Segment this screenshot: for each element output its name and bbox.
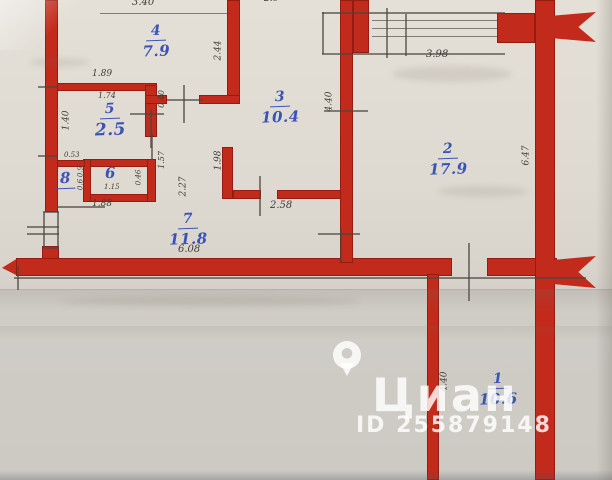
wall-room4-room3 xyxy=(227,0,240,104)
pencil-balcony-left xyxy=(322,12,324,54)
pencil-room3-door-v xyxy=(259,176,261,216)
pencil-balcony-tick-2 xyxy=(405,14,407,56)
pencil-balcony-tick-1 xyxy=(386,8,388,58)
wall-exterior-bottom xyxy=(16,258,452,276)
room-5-label: 5 2.5 xyxy=(81,97,138,141)
pencil-door5-cross-v xyxy=(183,85,185,123)
paper-crease-horizontal-1 xyxy=(0,290,612,320)
watermark-id: ID 255879148 xyxy=(356,413,552,438)
pencil-left-window-inner xyxy=(57,212,59,248)
pencil-band-cross-h xyxy=(318,233,360,235)
dim-room5-left: 1.40 xyxy=(63,106,72,136)
wall-door-seg-right xyxy=(199,95,240,104)
pencil-window-line-1 xyxy=(372,20,497,21)
dim-room2-right: 6.47 xyxy=(523,141,532,171)
wall-room6-right xyxy=(147,159,156,202)
wall-exterior-right xyxy=(535,0,555,480)
pencil-left-window-top xyxy=(43,211,59,213)
room-5-number: 5 xyxy=(100,101,120,120)
wall-room2-top-right-block xyxy=(497,13,535,43)
paper-smudge-1 xyxy=(392,66,512,82)
pencil-room5-door-v xyxy=(151,134,153,160)
dim-room5-above: 1.89 xyxy=(92,70,112,79)
room-6-number: 6 xyxy=(100,164,121,184)
wall-room5-top xyxy=(57,83,157,91)
paper-smudge-4 xyxy=(60,296,360,306)
dim-room3-door: 2.58 xyxy=(270,201,292,211)
paper-smudge-2 xyxy=(438,186,528,197)
pencil-window-line-2 xyxy=(372,28,497,29)
pencil-left-window-outer xyxy=(43,212,45,248)
dim-room6-right: 0.46 xyxy=(136,163,143,193)
room-7-label: 7 11.8 xyxy=(157,207,218,249)
pencil-under-band xyxy=(14,277,586,279)
wall-room3-bottom-right xyxy=(277,190,343,199)
wall-room3-room2 xyxy=(340,0,353,263)
room-7-number: 7 xyxy=(178,211,198,230)
wall-hall-right xyxy=(222,147,233,199)
pencil-left-window-tick-1 xyxy=(27,226,59,228)
location-pin-icon xyxy=(333,341,361,369)
room-8-label: 8 xyxy=(55,168,76,190)
wall-arrow-mid-right xyxy=(554,256,596,288)
pencil-band-tip-tick xyxy=(17,266,19,290)
room-3-area: 10.4 xyxy=(252,107,309,127)
wall-room3-bottom-left xyxy=(233,190,261,199)
pencil-left-window-tick-2 xyxy=(27,233,59,235)
dim-hall-198: 1.98 xyxy=(215,146,224,176)
paper-crease-line-1 xyxy=(0,289,612,290)
room-5-area: 2.5 xyxy=(82,119,139,141)
room-3-number: 3 xyxy=(270,89,290,108)
room-4-label: 4 7.9 xyxy=(127,19,184,61)
dim-room4-right: 2.44 xyxy=(215,36,224,66)
dim-room6-inner: 1.15 xyxy=(104,184,120,191)
paper-smudge-3 xyxy=(30,58,90,67)
dim-room6-below: 1.88 xyxy=(92,200,112,209)
room-6-label: 6 xyxy=(100,163,121,184)
floor-plan-scan: 3.40 2.6 2.44 1.89 1.74 1.40 0.40 1.57 2… xyxy=(0,0,612,480)
pencil-leftwall-tick-2 xyxy=(38,155,58,157)
room-2-number: 2 xyxy=(438,141,458,160)
room-4-area: 7.9 xyxy=(128,41,185,61)
pencil-balcony-top xyxy=(322,12,505,14)
pencil-room4-top xyxy=(100,13,230,14)
paper-crease-horizontal-2 xyxy=(0,326,612,340)
paper-shadow-right-edge xyxy=(596,0,612,480)
pencil-room1-door-v xyxy=(468,243,470,301)
dim-room8-b: 0.6 xyxy=(78,170,85,200)
pencil-window-line-3 xyxy=(372,36,497,37)
dim-room3-left: 4.40 xyxy=(326,87,335,117)
dim-hall-227: 2.27 xyxy=(180,172,189,202)
pencil-leftwall-tick-1 xyxy=(38,86,58,88)
room-2-label: 2 17.9 xyxy=(417,137,478,179)
pencil-balcony-bottom xyxy=(322,53,505,55)
dim-top-partial: 2.6 xyxy=(264,0,278,4)
wall-arrow-top-right xyxy=(554,12,596,42)
room-3-label: 3 10.4 xyxy=(251,85,308,127)
pencil-left-window-bottom xyxy=(43,247,59,249)
room-8-number: 8 xyxy=(55,169,76,190)
wall-room2-top-pier xyxy=(353,0,369,53)
dim-door-room5: 0.40 xyxy=(158,84,166,114)
dim-balcony-width: 3.98 xyxy=(426,50,448,60)
room-4-number: 4 xyxy=(146,23,166,42)
room-7-area: 11.8 xyxy=(158,229,219,249)
room-2-area: 17.9 xyxy=(418,159,479,179)
pencil-door5-cross-h xyxy=(167,99,203,101)
dim-top-width: 3.40 xyxy=(132,0,154,8)
paper-shadow-bottom-edge xyxy=(0,470,612,480)
dim-hall-157: 1.57 xyxy=(158,145,166,175)
